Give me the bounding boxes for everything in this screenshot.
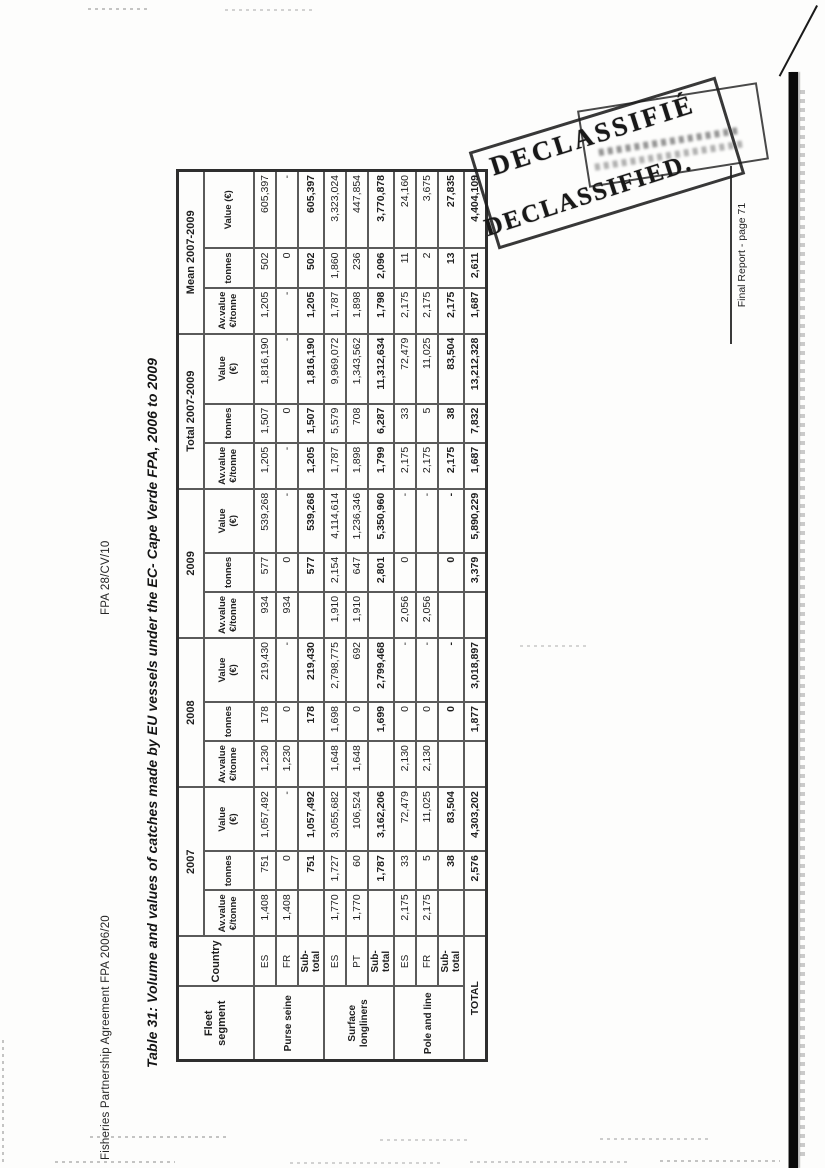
value-cell (464, 592, 486, 638)
subheader-avvalue-label: Av.value €/tonne (218, 292, 240, 330)
value-cell: 1,877 (464, 702, 486, 741)
value-cell: 1,698 (324, 702, 346, 741)
value-cell: 0 (416, 702, 438, 741)
value-cell: 3,379 (464, 553, 486, 592)
value-cell: - (416, 489, 438, 553)
value-cell: 2,056 (416, 592, 438, 638)
value-cell: - (276, 170, 298, 248)
table-row: PT 1,770 60 106,524 1,648 0 692 1,910 64… (346, 170, 368, 1060)
scan-noise (380, 1139, 470, 1141)
value-cell: 0 (276, 404, 298, 443)
value-cell: 502 (298, 248, 324, 287)
value-cell: 1,205 (254, 443, 276, 489)
country-cell: Sub-total (298, 936, 324, 986)
value-cell (368, 592, 394, 638)
value-cell: 83,504 (438, 787, 464, 851)
header-year-2007: 2007 (178, 787, 205, 936)
value-cell: 1,507 (254, 404, 276, 443)
value-cell: 2,175 (394, 443, 416, 489)
value-cell: 3,323,024 (324, 170, 346, 248)
value-cell: - (276, 787, 298, 851)
declassified-stamp: DECLASSIFIÉ DECLASSIFIED. (470, 80, 815, 265)
value-cell: 539,268 (298, 489, 324, 553)
value-cell: 2,175 (416, 890, 438, 936)
value-cell: 2,130 (416, 741, 438, 787)
subheader-value-label: Value (€) (218, 654, 240, 686)
subheader-value: Value (€) (204, 638, 254, 702)
value-cell: 13,212,328 (464, 334, 486, 404)
scan-noise (88, 8, 148, 10)
scan-noise (660, 1160, 780, 1162)
value-cell: 1,770 (346, 890, 368, 936)
header-fleet-segment: Fleet segment (178, 987, 255, 1061)
value-cell: 5 (416, 851, 438, 890)
value-cell (464, 741, 486, 787)
value-cell: 2,056 (394, 592, 416, 638)
subheader-avvalue: Av.value €/tonne (204, 443, 254, 489)
value-cell: 708 (346, 404, 368, 443)
value-cell: 934 (254, 592, 276, 638)
header-year-2009: 2009 (178, 489, 205, 638)
country-cell: ES (394, 936, 416, 986)
value-cell: 11 (394, 248, 416, 287)
value-cell: 38 (438, 404, 464, 443)
scan-noise (225, 9, 315, 11)
subheader-avvalue: Av.value €/tonne (204, 890, 254, 936)
value-cell: 83,504 (438, 334, 464, 404)
value-cell: 11,312,634 (368, 334, 394, 404)
value-cell: 33 (394, 851, 416, 890)
value-cell: 0 (276, 248, 298, 287)
value-cell: 24,160 (394, 170, 416, 248)
value-cell: 5 (416, 404, 438, 443)
scan-edge-fuzz (800, 90, 805, 1160)
value-cell: 38 (438, 851, 464, 890)
value-cell: 2,576 (464, 851, 486, 890)
value-cell: 1,057,492 (254, 787, 276, 851)
value-cell: 1,727 (324, 851, 346, 890)
value-cell: 72,479 (394, 787, 416, 851)
value-cell: 1,205 (298, 443, 324, 489)
value-cell (438, 890, 464, 936)
value-cell: 7,832 (464, 404, 486, 443)
subheader-tonnes: tonnes (204, 553, 254, 592)
subheader-value: Value (€) (204, 489, 254, 553)
value-cell: 236 (346, 248, 368, 287)
value-cell (298, 741, 324, 787)
value-cell: 539,268 (254, 489, 276, 553)
country-cell: Sub-total (368, 936, 394, 986)
value-cell: 502 (254, 248, 276, 287)
value-cell: 2,175 (416, 288, 438, 334)
value-cell: 4,114,614 (324, 489, 346, 553)
scanned-page: Fisheries Partnership Agreement FPA 2006… (0, 0, 825, 1168)
value-cell: 1,699 (368, 702, 394, 741)
value-cell: 0 (346, 702, 368, 741)
value-cell: 2,130 (394, 741, 416, 787)
value-cell: 447,854 (346, 170, 368, 248)
subheader-value-label: Value (€) (218, 803, 240, 835)
value-cell: 1,230 (276, 741, 298, 787)
subheader-avvalue-label: Av.value €/tonne (218, 596, 240, 634)
value-cell: - (276, 288, 298, 334)
value-cell: - (276, 443, 298, 489)
value-cell: 3,675 (416, 170, 438, 248)
total-label-cell: TOTAL (464, 936, 486, 1060)
value-cell: - (394, 638, 416, 702)
fleet-segment-cell: Purse seine (254, 987, 324, 1061)
value-cell: 1,236,346 (346, 489, 368, 553)
value-cell: 1,648 (346, 741, 368, 787)
value-cell: 60 (346, 851, 368, 890)
scan-noise (55, 1161, 175, 1163)
value-cell: 33 (394, 404, 416, 443)
header-total: Total 2007-2009 (178, 334, 205, 489)
value-cell: 11,025 (416, 787, 438, 851)
doc-reference-left: Fisheries Partnership Agreement FPA 2006… (100, 915, 112, 1160)
table-row: FR 2,175 5 11,025 2,130 0 - 2,056 - 2,17… (416, 170, 438, 1060)
subheader-value-label: Value (€) (218, 353, 240, 385)
subheader-avvalue: Av.value €/tonne (204, 741, 254, 787)
value-cell: - (416, 638, 438, 702)
subheader-avvalue-label: Av.value €/tonne (218, 447, 240, 485)
value-cell (438, 741, 464, 787)
value-cell: 2,175 (394, 890, 416, 936)
value-cell: 2 (416, 248, 438, 287)
value-cell: 3,018,897 (464, 638, 486, 702)
value-cell: 1,816,190 (298, 334, 324, 404)
value-cell (298, 890, 324, 936)
table-row: Purse seine ES 1,408 751 1,057,492 1,230… (254, 170, 276, 1060)
scan-noise (2, 1040, 4, 1165)
catches-table: Fleet segment Country 2007 2008 2009 Tot… (176, 169, 488, 1062)
fleet-segment-cell: Surface longliners (324, 987, 394, 1061)
value-cell: 1,787 (324, 288, 346, 334)
value-cell: 2,175 (394, 288, 416, 334)
value-cell: 1,898 (346, 443, 368, 489)
value-cell: 751 (254, 851, 276, 890)
value-cell: 1,860 (324, 248, 346, 287)
value-cell: 1,787 (324, 443, 346, 489)
value-cell: 2,801 (368, 553, 394, 592)
total-row: TOTAL 2,576 4,303,202 1,877 3,018,897 3,… (464, 170, 486, 1060)
value-cell: 0 (438, 553, 464, 592)
value-cell: 1,343,562 (346, 334, 368, 404)
value-cell: 3,162,206 (368, 787, 394, 851)
country-cell: PT (346, 936, 368, 986)
value-cell: 577 (254, 553, 276, 592)
fleet-segment-cell: Pole and line (394, 987, 464, 1061)
value-cell: 605,397 (254, 170, 276, 248)
value-cell: - (276, 489, 298, 553)
value-cell: 219,430 (254, 638, 276, 702)
subtotal-row: Sub-total 38 83,504 0 - 0 - 2,175 38 83,… (438, 170, 464, 1060)
doc-reference-center: FPA 28/CV/10 (100, 541, 112, 615)
value-cell: 1,816,190 (254, 334, 276, 404)
value-cell: 2,799,468 (368, 638, 394, 702)
value-cell (438, 592, 464, 638)
value-cell: 1,910 (346, 592, 368, 638)
value-cell: - (394, 489, 416, 553)
scan-noise (290, 1162, 440, 1164)
scan-edge-artifact (789, 72, 798, 1168)
subheader-tonnes: tonnes (204, 702, 254, 741)
subheader-avvalue: Av.value €/tonne (204, 288, 254, 334)
subheader-avvalue: Av.value €/tonne (204, 592, 254, 638)
table-row: Pole and line ES 2,175 33 72,479 2,130 0… (394, 170, 416, 1060)
subtotal-row: Sub-total 1,787 3,162,206 1,699 2,799,46… (368, 170, 394, 1060)
scan-noise (90, 1136, 230, 1138)
subheader-value: Value (€) (204, 787, 254, 851)
value-cell: 1,408 (254, 890, 276, 936)
value-cell: 11,025 (416, 334, 438, 404)
table-row: Surface longliners ES 1,770 1,727 3,055,… (324, 170, 346, 1060)
value-cell: 2,798,775 (324, 638, 346, 702)
scan-noise (470, 1161, 630, 1163)
value-cell: 1,799 (368, 443, 394, 489)
value-cell: 1,687 (464, 443, 486, 489)
value-cell: 178 (298, 702, 324, 741)
value-cell: 3,055,682 (324, 787, 346, 851)
value-cell: 178 (254, 702, 276, 741)
value-cell: 27,835 (438, 170, 464, 248)
value-cell: 577 (298, 553, 324, 592)
value-cell: 2,154 (324, 553, 346, 592)
value-cell: 3,770,878 (368, 170, 394, 248)
value-cell: 934 (276, 592, 298, 638)
value-cell: 5,350,960 (368, 489, 394, 553)
subheader-value-label: Value (€) (218, 505, 240, 537)
value-cell: 0 (394, 702, 416, 741)
value-cell: 9,969,072 (324, 334, 346, 404)
value-cell: 5,579 (324, 404, 346, 443)
header-mean: Mean 2007-2009 (178, 170, 205, 333)
value-cell: 692 (346, 638, 368, 702)
value-cell: 605,397 (298, 170, 324, 248)
subheader-tonnes: tonnes (204, 851, 254, 890)
value-cell: 4,303,202 (464, 787, 486, 851)
header-group-row: Fleet segment Country 2007 2008 2009 Tot… (178, 170, 205, 1060)
value-cell: 0 (438, 702, 464, 741)
value-cell: 0 (394, 553, 416, 592)
subheader-value: Value (€) (204, 334, 254, 404)
table-row: FR 1,408 0 - 1,230 0 - 934 0 - - 0 - - 0… (276, 170, 298, 1060)
header-sub-row: Av.value €/tonne tonnes Value (€) Av.val… (204, 170, 254, 1060)
value-cell: 2,175 (438, 443, 464, 489)
subtotal-row: Sub-total 751 1,057,492 178 219,430 577 … (298, 170, 324, 1060)
value-cell: 0 (276, 851, 298, 890)
scan-noise (520, 645, 590, 647)
country-cell: FR (416, 936, 438, 986)
header-country: Country (178, 936, 255, 986)
value-cell: - (276, 638, 298, 702)
value-cell: - (438, 638, 464, 702)
value-cell: 1,408 (276, 890, 298, 936)
value-cell: 2,175 (416, 443, 438, 489)
value-cell: 1,770 (324, 890, 346, 936)
subheader-tonnes: tonnes (204, 248, 254, 287)
value-cell: 5,890,229 (464, 489, 486, 553)
value-cell: 6,287 (368, 404, 394, 443)
value-cell: 647 (346, 553, 368, 592)
value-cell: - (276, 334, 298, 404)
value-cell (416, 553, 438, 592)
value-cell: - (438, 489, 464, 553)
subheader-avvalue-label: Av.value €/tonne (218, 894, 240, 932)
value-cell: 1,787 (368, 851, 394, 890)
value-cell: 219,430 (298, 638, 324, 702)
value-cell: 1,057,492 (298, 787, 324, 851)
country-cell: Sub-total (438, 936, 464, 986)
value-cell: 1,648 (324, 741, 346, 787)
country-cell: FR (276, 936, 298, 986)
subheader-tonnes: tonnes (204, 404, 254, 443)
value-cell: 751 (298, 851, 324, 890)
scan-noise (600, 1138, 710, 1140)
value-cell: 1,507 (298, 404, 324, 443)
value-cell: 0 (276, 553, 298, 592)
value-cell (464, 890, 486, 936)
subheader-value: Value (€) (204, 170, 254, 248)
value-cell: 2,175 (438, 288, 464, 334)
value-cell (368, 741, 394, 787)
value-cell: 1,205 (254, 288, 276, 334)
subheader-avvalue-label: Av.value €/tonne (218, 745, 240, 783)
value-cell: 1,687 (464, 288, 486, 334)
value-cell: 2,096 (368, 248, 394, 287)
value-cell: 72,479 (394, 334, 416, 404)
value-cell (368, 890, 394, 936)
header-year-2008: 2008 (178, 638, 205, 787)
value-cell: 1,798 (368, 288, 394, 334)
value-cell (298, 592, 324, 638)
value-cell: 1,230 (254, 741, 276, 787)
country-cell: ES (324, 936, 346, 986)
value-cell: 1,898 (346, 288, 368, 334)
value-cell: 1,205 (298, 288, 324, 334)
country-cell: ES (254, 936, 276, 986)
value-cell: 1,910 (324, 592, 346, 638)
value-cell: 106,524 (346, 787, 368, 851)
value-cell: 13 (438, 248, 464, 287)
value-cell: 0 (276, 702, 298, 741)
table-title: Table 31: Volume and values of catches m… (144, 358, 160, 1068)
